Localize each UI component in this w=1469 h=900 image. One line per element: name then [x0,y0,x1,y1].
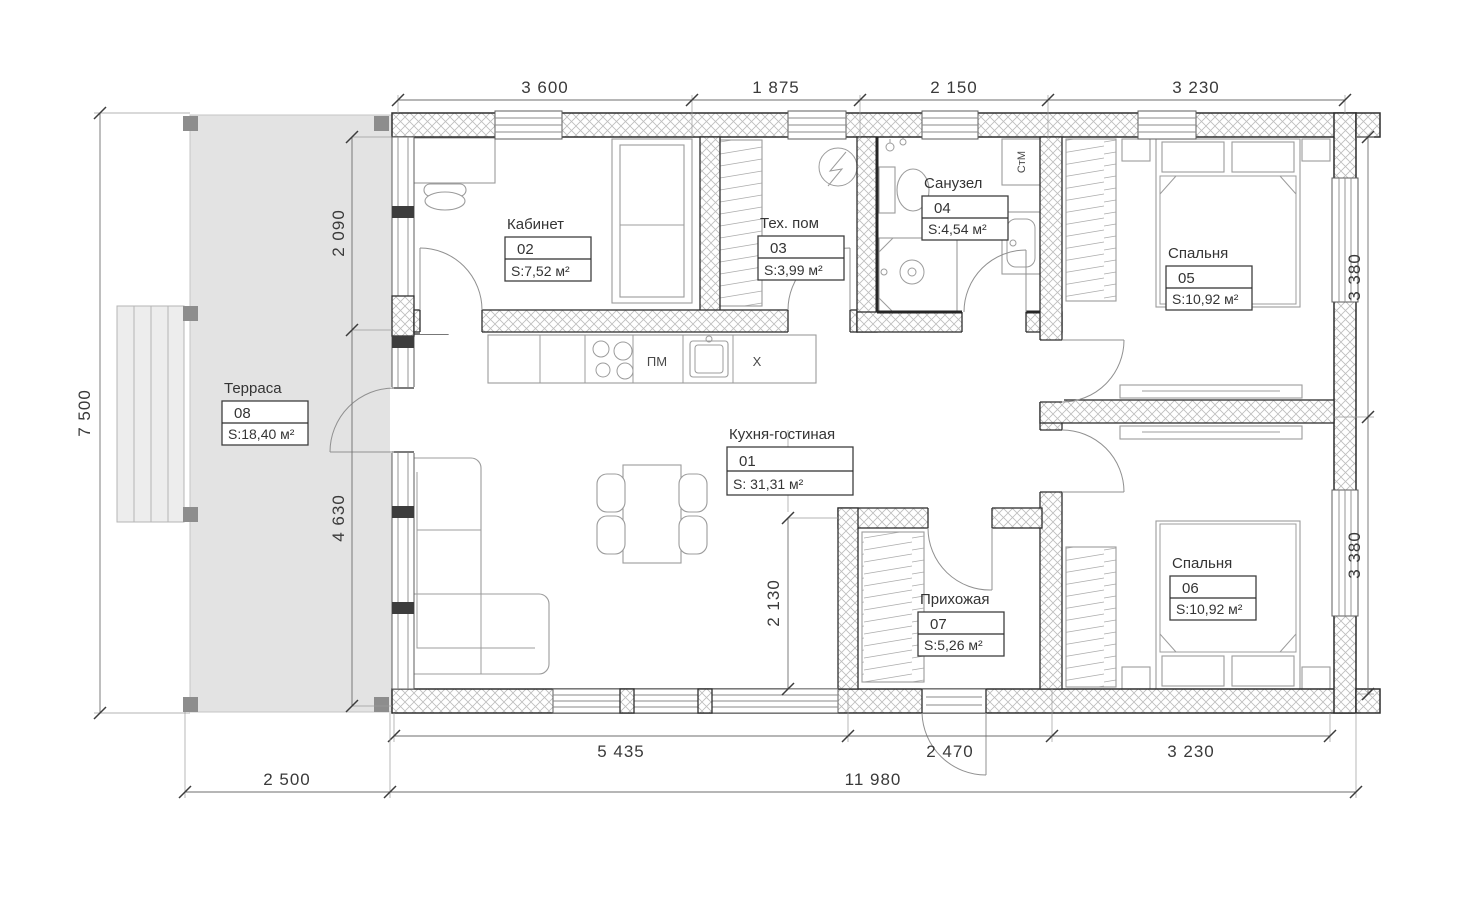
dim-top-4: 3 230 [1172,78,1220,97]
room-number: 07 [930,616,947,633]
wall-hall-left [838,508,858,689]
nightstand [1122,667,1150,689]
dim-left-2: 4 630 [329,494,348,542]
room-area: S:7,52 м² [511,263,570,279]
dim-right-2: 3 380 [1345,531,1364,579]
room-number: 01 [739,453,756,470]
dim-hall-height: 2 130 [764,579,783,627]
room-number: 06 [1182,580,1199,597]
office-chair-seat [425,192,465,210]
kitchen-sink [690,336,728,377]
dishwasher-label: ПМ [647,354,667,369]
pillow [1232,142,1294,172]
room-area: S:10,92 м² [1172,291,1239,307]
room-area: S:18,40 м² [228,426,295,442]
dim-left-total: 7 500 [75,389,94,437]
dim-bottom-2: 2 470 [926,742,974,761]
terrace-door-opening [390,387,416,453]
room-name: Санузел [924,175,982,192]
room-area: S:5,26 м² [924,637,983,653]
window-bed05-top [1138,111,1196,139]
room-name: Прихожая [920,591,990,608]
room-name: Спальня [1172,555,1232,572]
wall-office-tech [700,137,720,313]
room-label-01: Кухня-гостиная 01 S: 31,31 м² [727,426,853,495]
dim-left-1: 2 090 [329,209,348,257]
wardrobe-06 [1066,547,1116,687]
chair [679,474,707,512]
dim-house-width: 11 980 [845,770,902,789]
dim-top-1: 3 600 [521,78,569,97]
floor-plan-canvas: 3 600 1 875 2 150 3 230 5 435 2 470 3 23… [0,0,1469,900]
tv-unit-06 [1120,426,1302,439]
room-area: S:10,92 м² [1176,601,1243,617]
pillow [1232,656,1294,686]
room-name: Спальня [1168,245,1228,262]
room-name: Тех. пом [760,215,819,232]
window-bath-top [922,111,978,139]
wall-left-corner-block [392,296,414,336]
fridge-label: X [753,354,762,369]
chair [679,516,707,554]
nightstand [1302,139,1330,161]
wardrobe-05 [1066,139,1116,301]
wall-bedrooms-partition [1040,400,1334,423]
room-area: S:3,99 м² [764,262,823,278]
room-name: Кухня-гостиная [729,426,835,443]
floor-plan-drawing: 3 600 1 875 2 150 3 230 5 435 2 470 3 23… [0,0,1469,900]
room-number: 02 [517,241,534,258]
tv-unit-05 [1120,385,1302,398]
pillow [1162,142,1224,172]
nightstand [1122,139,1150,161]
room-number: 03 [770,240,787,257]
wall-bath-bottom [857,312,1062,332]
pillow [1162,656,1224,686]
room-number: 04 [934,200,951,217]
shower [879,238,957,312]
hall-wardrobe [862,532,924,682]
wall-bath-left [857,137,877,332]
room-name: Терраса [224,380,282,397]
wall-bottom [392,689,1356,713]
room-number: 05 [1178,270,1195,287]
room-name: Кабинет [507,216,564,233]
dim-right-1: 3 380 [1345,253,1364,301]
dim-top-3: 2 150 [930,78,978,97]
nightstand [1302,667,1330,689]
window-office-top [495,111,562,139]
room-area: S:4,54 м² [928,221,987,237]
room-number: 08 [234,405,251,422]
wall-stub-top-right [1356,113,1380,137]
entrance-threshold [922,689,986,713]
dim-bottom-1: 5 435 [597,742,645,761]
window-living-bottom [553,689,838,713]
window-tech-top [788,111,846,139]
chair [597,516,625,554]
chair [597,474,625,512]
dim-bottom-3: 3 230 [1167,742,1215,761]
dim-terrace-width: 2 500 [263,770,311,789]
office-sofa-bed [612,139,692,303]
room-area: S: 31,31 м² [733,476,804,492]
dim-top-2: 1 875 [752,78,800,97]
washing-machine-label: СтМ [1016,151,1028,173]
